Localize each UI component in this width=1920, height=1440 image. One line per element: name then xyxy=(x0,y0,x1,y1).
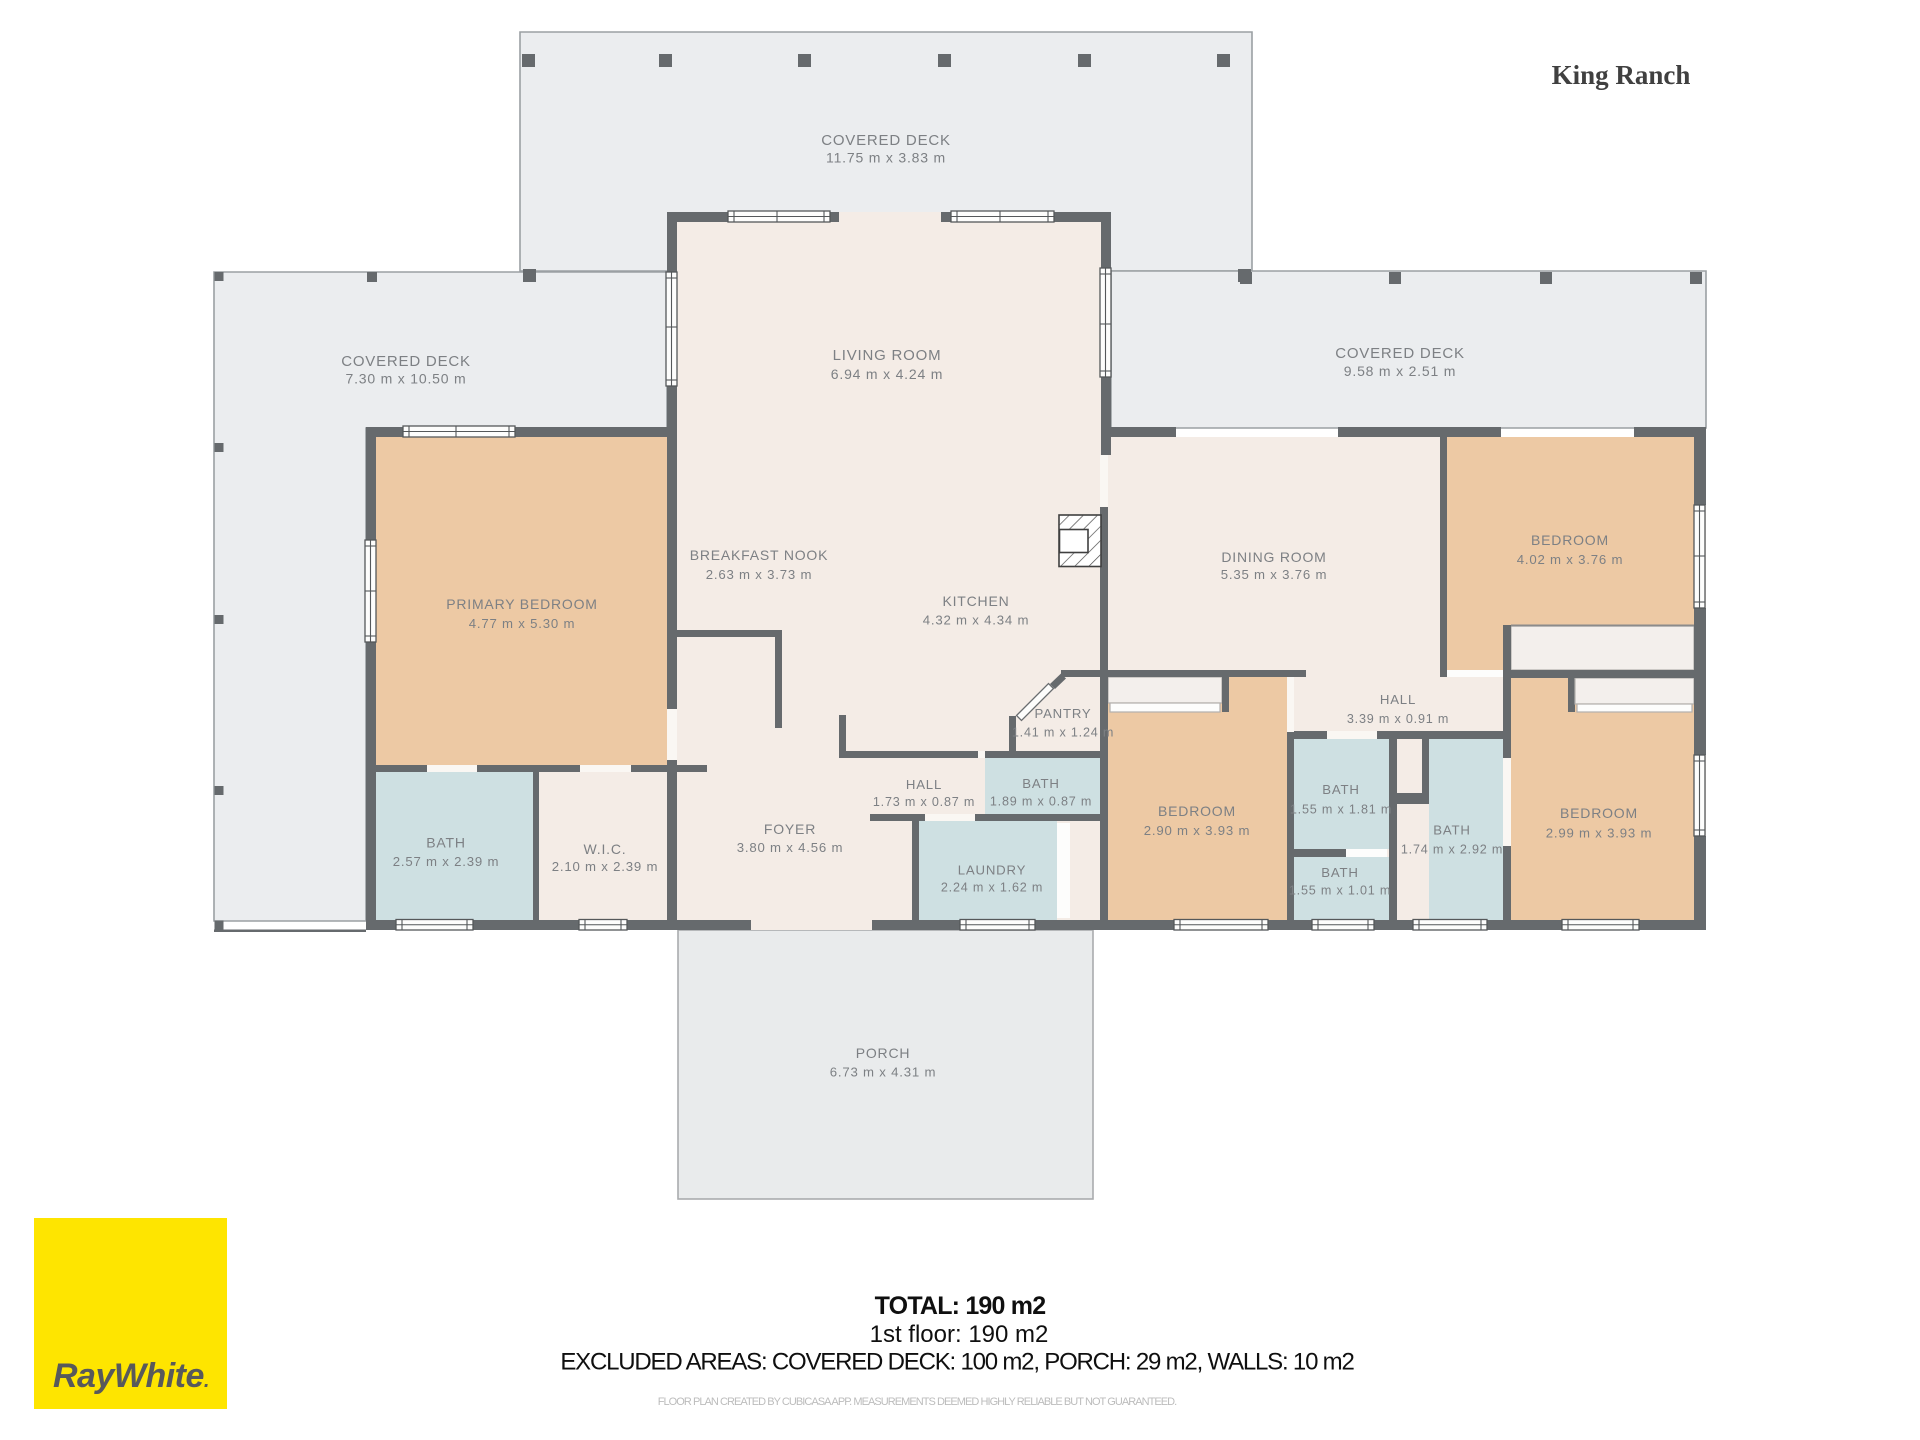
svg-text:4.02 m x 3.76 m: 4.02 m x 3.76 m xyxy=(1517,552,1624,567)
svg-text:3.80 m x 4.56 m: 3.80 m x 4.56 m xyxy=(737,840,844,855)
svg-text:BATH: BATH xyxy=(1433,823,1470,838)
svg-text:KITCHEN: KITCHEN xyxy=(942,593,1009,609)
svg-text:7.30 m x 10.50 m: 7.30 m x 10.50 m xyxy=(346,371,467,387)
svg-text:W.I.C.: W.I.C. xyxy=(584,841,627,857)
svg-text:2.10 m x 2.39 m: 2.10 m x 2.39 m xyxy=(552,859,659,874)
svg-text:DINING ROOM: DINING ROOM xyxy=(1221,549,1326,565)
svg-text:BATH: BATH xyxy=(1322,782,1359,797)
svg-text:3.39 m x 0.91 m: 3.39 m x 0.91 m xyxy=(1347,712,1449,726)
svg-text:BATH: BATH xyxy=(1321,865,1358,880)
svg-text:HALL: HALL xyxy=(906,777,942,792)
svg-text:6.73 m x 4.31 m: 6.73 m x 4.31 m xyxy=(830,1065,937,1080)
svg-text:COVERED DECK: COVERED DECK xyxy=(341,353,471,370)
svg-text:5.35 m x 3.76 m: 5.35 m x 3.76 m xyxy=(1221,567,1328,582)
svg-text:COVERED DECK: COVERED DECK xyxy=(1335,345,1465,362)
svg-text:TOTAL: 190 m2: TOTAL: 190 m2 xyxy=(875,1292,1046,1320)
svg-text:2.57 m x 2.39 m: 2.57 m x 2.39 m xyxy=(393,854,500,869)
svg-text:FLOOR PLAN CREATED BY CUBICASA: FLOOR PLAN CREATED BY CUBICASA APP. MEAS… xyxy=(658,1396,1177,1408)
svg-text:9.58 m x 2.51 m: 9.58 m x 2.51 m xyxy=(1344,363,1456,379)
svg-text:2.63 m x 3.73 m: 2.63 m x 3.73 m xyxy=(706,567,813,582)
svg-text:PANTRY: PANTRY xyxy=(1034,706,1091,721)
svg-text:1st floor: 190 m2: 1st floor: 190 m2 xyxy=(870,1321,1049,1348)
svg-text:4.77 m x 5.30 m: 4.77 m x 5.30 m xyxy=(469,616,576,631)
svg-text:BREAKFAST NOOK: BREAKFAST NOOK xyxy=(690,547,829,563)
svg-text:HALL: HALL xyxy=(1380,692,1416,707)
svg-text:BEDROOM: BEDROOM xyxy=(1531,532,1609,548)
svg-text:PRIMARY BEDROOM: PRIMARY BEDROOM xyxy=(446,596,598,612)
svg-text:6.94 m x 4.24 m: 6.94 m x 4.24 m xyxy=(831,366,943,382)
svg-text:BEDROOM: BEDROOM xyxy=(1560,805,1638,821)
svg-text:1.41 m x 1.24 m: 1.41 m x 1.24 m xyxy=(1012,726,1114,740)
svg-text:King Ranch: King Ranch xyxy=(1552,60,1691,90)
svg-text:1.74 m x 2.92 m: 1.74 m x 2.92 m xyxy=(1401,843,1503,857)
svg-text:EXCLUDED AREAS: COVERED DECK:: EXCLUDED AREAS: COVERED DECK: 100 m2, PO… xyxy=(560,1349,1354,1376)
svg-text:FOYER: FOYER xyxy=(764,821,816,837)
svg-text:2.99 m x 3.93 m: 2.99 m x 3.93 m xyxy=(1546,826,1653,841)
svg-text:LIVING ROOM: LIVING ROOM xyxy=(833,347,942,364)
svg-text:PORCH: PORCH xyxy=(856,1045,911,1061)
svg-text:1.55 m x 1.81 m: 1.55 m x 1.81 m xyxy=(1290,803,1392,817)
svg-text:RayWhite.: RayWhite. xyxy=(53,1357,209,1395)
svg-text:2.24 m x 1.62 m: 2.24 m x 1.62 m xyxy=(941,881,1043,895)
svg-text:BATH: BATH xyxy=(426,835,466,851)
svg-text:2.90 m x 3.93 m: 2.90 m x 3.93 m xyxy=(1144,823,1251,838)
svg-text:4.32 m x 4.34 m: 4.32 m x 4.34 m xyxy=(923,613,1030,628)
svg-text:BATH: BATH xyxy=(1022,776,1059,791)
svg-text:1.89 m x 0.87 m: 1.89 m x 0.87 m xyxy=(990,795,1092,809)
svg-text:COVERED DECK: COVERED DECK xyxy=(821,132,951,149)
svg-text:11.75 m x 3.83 m: 11.75 m x 3.83 m xyxy=(826,150,946,166)
svg-text:BEDROOM: BEDROOM xyxy=(1158,803,1236,819)
svg-text:1.55 m x 1.01 m: 1.55 m x 1.01 m xyxy=(1289,884,1391,898)
svg-text:LAUNDRY: LAUNDRY xyxy=(958,863,1026,878)
svg-text:1.73 m x 0.87 m: 1.73 m x 0.87 m xyxy=(873,795,975,809)
